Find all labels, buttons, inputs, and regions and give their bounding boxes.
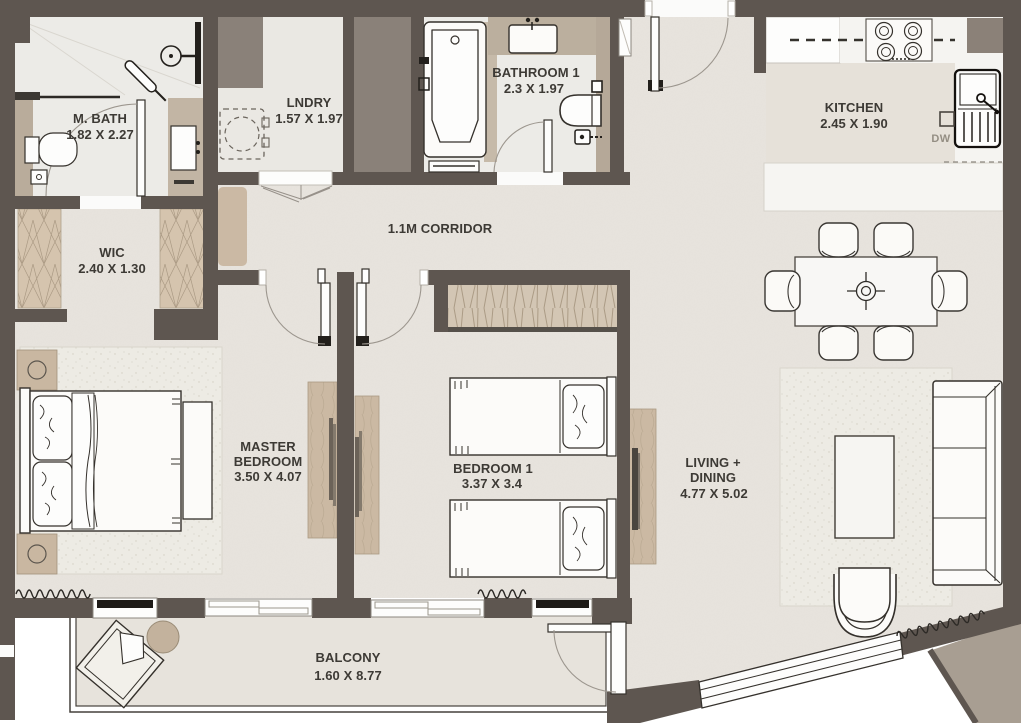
svg-text:LNDRY: LNDRY — [287, 95, 332, 110]
svg-text:2.45 X 1.90: 2.45 X 1.90 — [820, 116, 888, 131]
svg-text:1.82 X 2.27: 1.82 X 2.27 — [66, 127, 134, 142]
svg-text:3.50 X 4.07: 3.50 X 4.07 — [234, 469, 302, 484]
svg-text:BALCONY: BALCONY — [316, 650, 381, 665]
svg-text:DW: DW — [931, 133, 950, 145]
svg-text:WIC: WIC — [99, 245, 125, 260]
svg-text:LIVING +: LIVING + — [685, 455, 741, 470]
svg-text:M. BATH: M. BATH — [73, 111, 127, 126]
svg-text:4.77 X 5.02: 4.77 X 5.02 — [680, 486, 748, 501]
svg-text:BATHROOM 1: BATHROOM 1 — [492, 65, 579, 80]
svg-text:KITCHEN: KITCHEN — [825, 100, 883, 115]
svg-text:2.40 X 1.30: 2.40 X 1.30 — [78, 261, 146, 276]
svg-text:MASTER: MASTER — [240, 439, 296, 454]
svg-text:BEDROOM 1: BEDROOM 1 — [453, 461, 533, 476]
svg-text:3.37 X 3.4: 3.37 X 3.4 — [462, 476, 523, 491]
svg-text:1.57 X 1.97: 1.57 X 1.97 — [275, 111, 343, 126]
svg-text:1.1M CORRIDOR: 1.1M CORRIDOR — [388, 221, 493, 236]
svg-text:BEDROOM: BEDROOM — [234, 454, 303, 469]
svg-text:2.3 X 1.97: 2.3 X 1.97 — [504, 81, 564, 96]
svg-text:DINING: DINING — [690, 470, 736, 485]
svg-text:1.60 X 8.77: 1.60 X 8.77 — [314, 668, 382, 683]
